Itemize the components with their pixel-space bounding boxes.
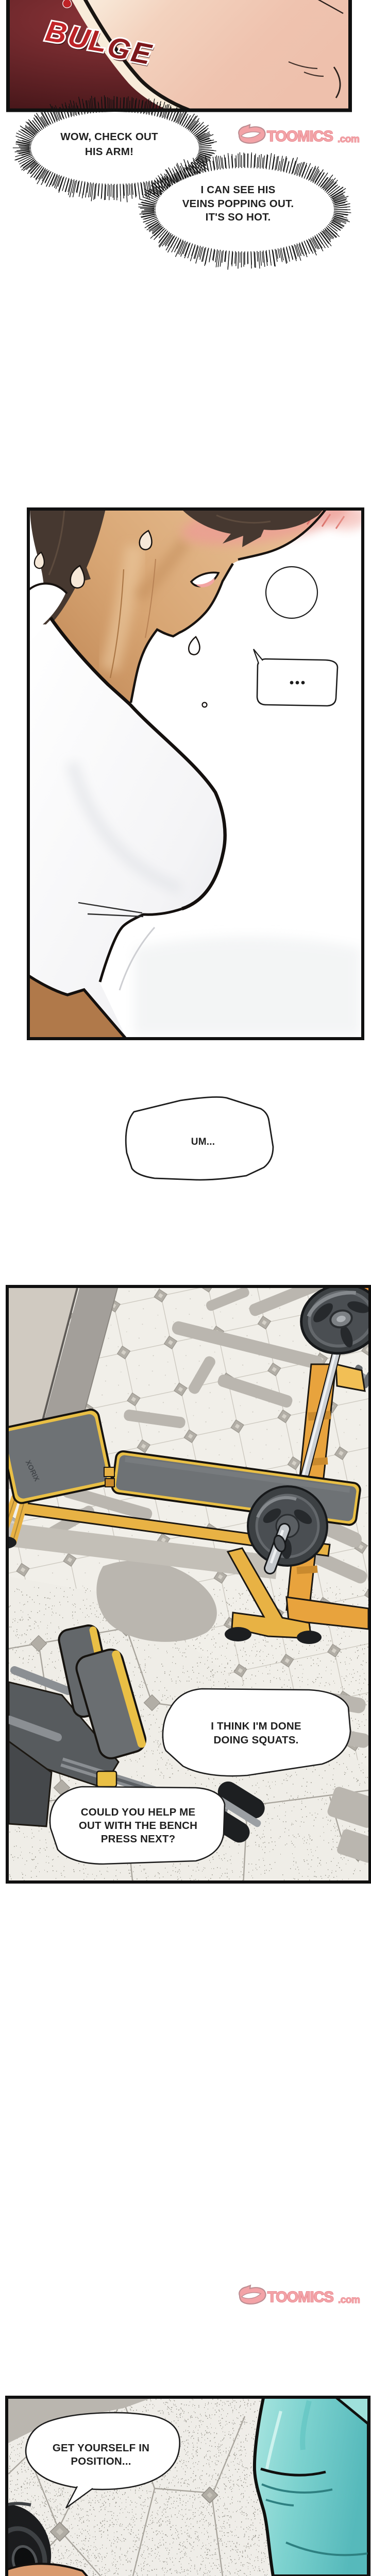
svg-text:IT'S SO HOT.: IT'S SO HOT. — [206, 211, 271, 223]
svg-text:I CAN SEE HIS: I CAN SEE HIS — [201, 184, 276, 196]
svg-text:VEINS POPPING OUT.: VEINS POPPING OUT. — [182, 198, 294, 210]
svg-text:OUT WITH THE BENCH: OUT WITH THE BENCH — [79, 1820, 197, 1832]
svg-text:UM...: UM... — [191, 1137, 215, 1147]
svg-text:COULD YOU HELP ME: COULD YOU HELP ME — [81, 1806, 195, 1818]
svg-text:I THINK I'M DONE: I THINK I'M DONE — [211, 1720, 301, 1732]
svg-text:GET YOURSELF IN: GET YOURSELF IN — [53, 2442, 149, 2454]
svg-text:HIS ARM!: HIS ARM! — [85, 146, 133, 158]
svg-text:WOW, CHECK OUT: WOW, CHECK OUT — [60, 131, 158, 143]
svg-text:PRESS NEXT?: PRESS NEXT? — [101, 1833, 176, 1845]
svg-text:DOING SQUATS.: DOING SQUATS. — [213, 1734, 298, 1746]
svg-text:POSITION...: POSITION... — [71, 2455, 131, 2467]
